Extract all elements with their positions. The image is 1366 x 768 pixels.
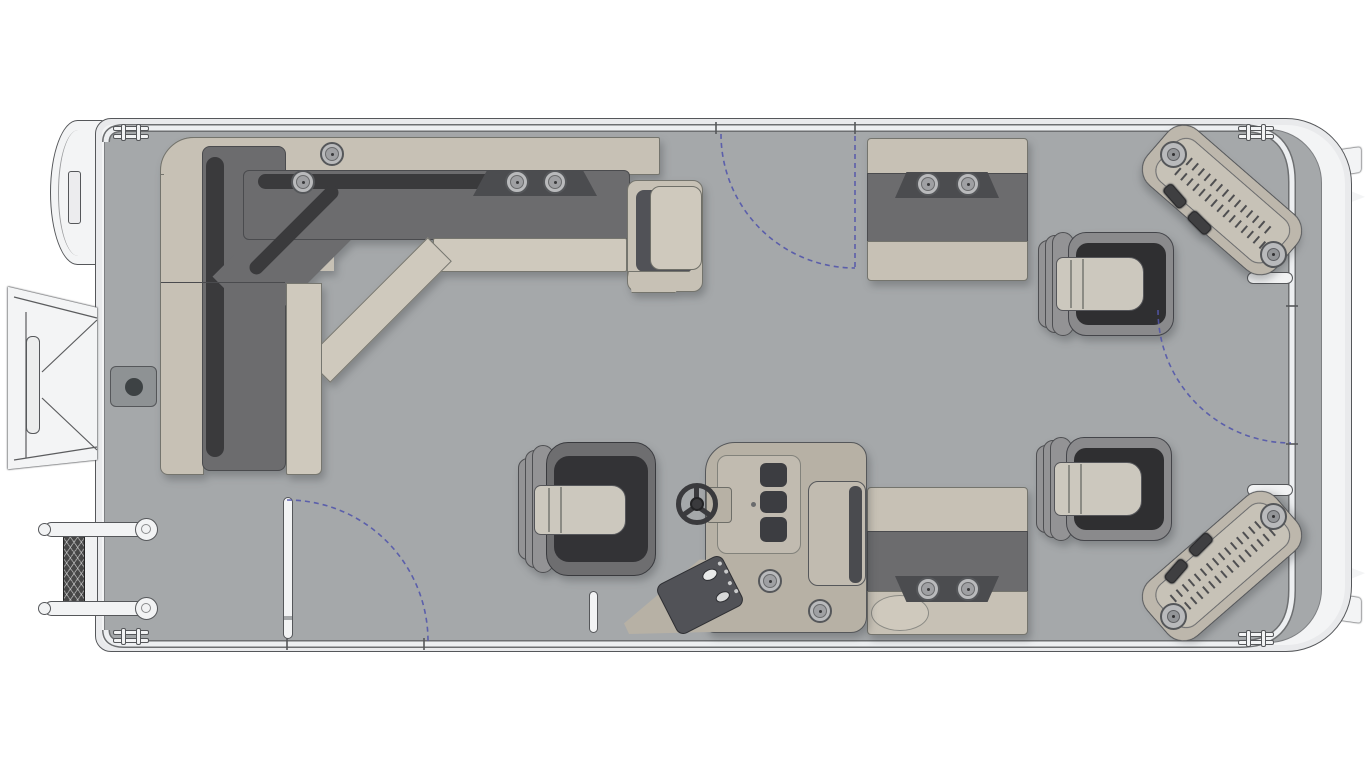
step-bolt	[1260, 241, 1287, 268]
hinge-bracket	[1238, 630, 1274, 647]
cup-holder-icon	[320, 142, 344, 166]
ladder-folded-steps	[63, 535, 85, 603]
gauge-slot	[760, 491, 787, 513]
bucket-seat-bottom	[1036, 437, 1172, 541]
pontoon-floorplan	[0, 0, 1366, 768]
cup-holder-icon	[956, 577, 980, 601]
gauge-slot	[760, 517, 787, 542]
center-grab-post	[589, 591, 598, 633]
bench-seat-bottom	[867, 487, 1028, 635]
cup-holder-icon	[505, 170, 529, 194]
cup-holder-icon	[808, 599, 832, 623]
captains-chair	[518, 442, 656, 576]
lounge-cup-tray	[473, 171, 597, 196]
step-bolt	[1160, 603, 1187, 630]
steering-wheel-icon	[676, 483, 718, 525]
bow-lounge	[160, 137, 705, 475]
ladder-mount-plate	[135, 518, 158, 541]
lounge-armrest-pad	[650, 186, 702, 270]
ladder-cap	[38, 602, 51, 615]
ladder-mount-plate	[135, 597, 158, 620]
side-gate-open-bar	[283, 497, 293, 639]
lounge-seam	[161, 282, 285, 283]
hinge-bracket	[1238, 124, 1274, 141]
cup-holder-icon	[916, 577, 940, 601]
cup-holder-icon	[916, 172, 940, 196]
bench-cup-tray	[895, 172, 999, 198]
hinge-bracket	[113, 124, 149, 141]
step-bolt	[1260, 503, 1287, 530]
cup-holder-icon	[543, 170, 567, 194]
cup-holder-icon	[956, 172, 980, 196]
pedestal-table-base	[110, 366, 157, 407]
console-dot	[751, 502, 756, 507]
nose-cone-bracket	[68, 171, 81, 224]
cup-holder-icon	[291, 170, 315, 194]
gauge-slot	[760, 463, 787, 487]
lounge-front-band-left	[286, 283, 322, 475]
bow-gate-handle	[26, 336, 40, 434]
bench-cup-tray	[895, 576, 999, 602]
ladder-cap	[38, 523, 51, 536]
bench-seat-top	[867, 138, 1028, 281]
cup-holder-icon	[758, 569, 782, 593]
lounge-front-band-top	[433, 238, 627, 272]
step-bolt	[1160, 141, 1187, 168]
bucket-seat-top	[1038, 232, 1174, 336]
bow-gate-open	[6, 283, 98, 473]
switch-oval	[714, 589, 732, 605]
ignition-oval	[700, 566, 719, 583]
console-lean-pad	[808, 481, 866, 586]
hinge-bracket	[113, 628, 149, 645]
